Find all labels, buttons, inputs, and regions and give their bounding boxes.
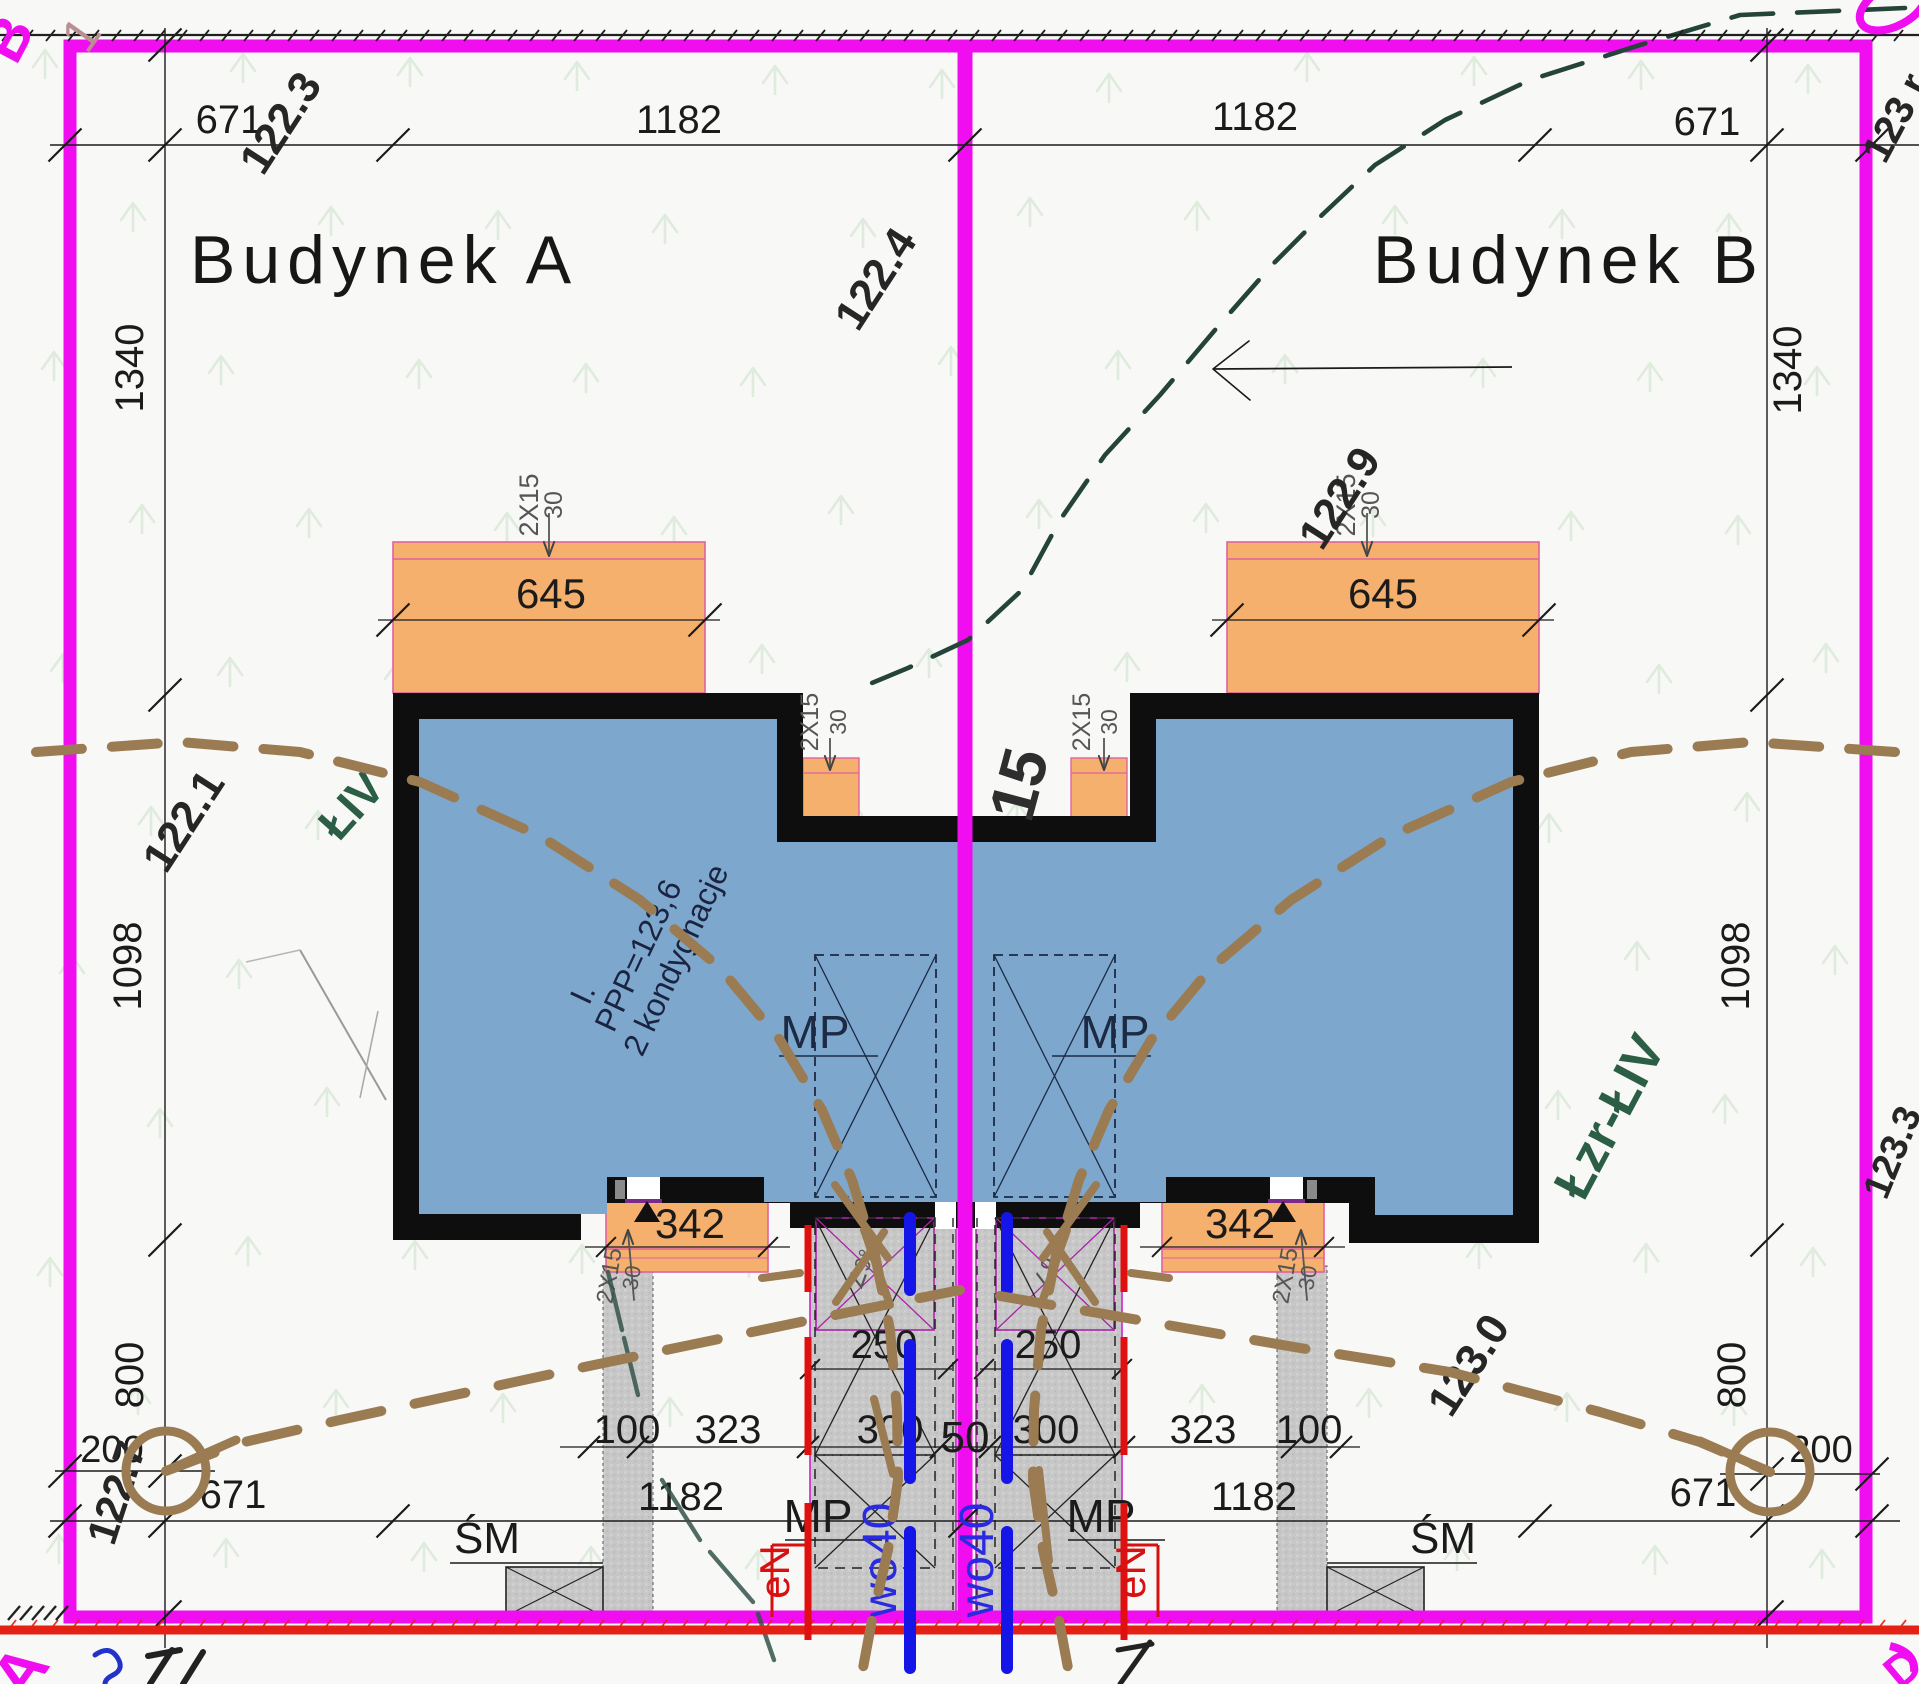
- svg-text:Budynek B: Budynek B: [1373, 222, 1765, 298]
- svg-text:250: 250: [1015, 1323, 1082, 1367]
- svg-text:323: 323: [695, 1408, 762, 1452]
- svg-text:645: 645: [1348, 570, 1418, 617]
- svg-text:2X15: 2X15: [1068, 693, 1096, 751]
- svg-text:Budynek A: Budynek A: [190, 222, 578, 298]
- svg-text:342: 342: [1205, 1200, 1275, 1247]
- svg-text:2X15: 2X15: [796, 693, 824, 751]
- svg-text:ŚM: ŚM: [454, 1512, 520, 1563]
- svg-text:30: 30: [1293, 1263, 1322, 1291]
- svg-text:MP: MP: [784, 1490, 853, 1542]
- svg-text:100: 100: [1276, 1408, 1343, 1452]
- svg-text:1182: 1182: [1212, 95, 1298, 139]
- svg-text:50: 50: [941, 1413, 990, 1462]
- svg-text:30: 30: [1096, 709, 1122, 735]
- svg-text:342: 342: [655, 1200, 725, 1247]
- svg-text:800: 800: [108, 1342, 152, 1409]
- svg-text:ŚM: ŚM: [1410, 1512, 1476, 1563]
- svg-text:eN: eN: [751, 1545, 798, 1599]
- svg-text:1182: 1182: [636, 98, 722, 142]
- svg-text:1182: 1182: [1211, 1475, 1297, 1519]
- svg-text:30: 30: [825, 709, 851, 735]
- svg-text:300: 300: [1013, 1408, 1080, 1452]
- svg-text:323: 323: [1170, 1408, 1237, 1452]
- svg-text:1340: 1340: [108, 324, 152, 413]
- svg-text:1340: 1340: [1766, 326, 1810, 415]
- svg-text:eN: eN: [1107, 1545, 1154, 1599]
- svg-text:30: 30: [540, 491, 568, 519]
- svg-text:1098: 1098: [106, 922, 150, 1011]
- svg-text:645: 645: [516, 570, 586, 617]
- svg-text:100: 100: [594, 1408, 661, 1452]
- svg-text:1098: 1098: [1714, 922, 1758, 1011]
- svg-text:wo40: wo40: [951, 1503, 1004, 1619]
- svg-text:671: 671: [1674, 100, 1741, 144]
- svg-text:800: 800: [1710, 1342, 1754, 1409]
